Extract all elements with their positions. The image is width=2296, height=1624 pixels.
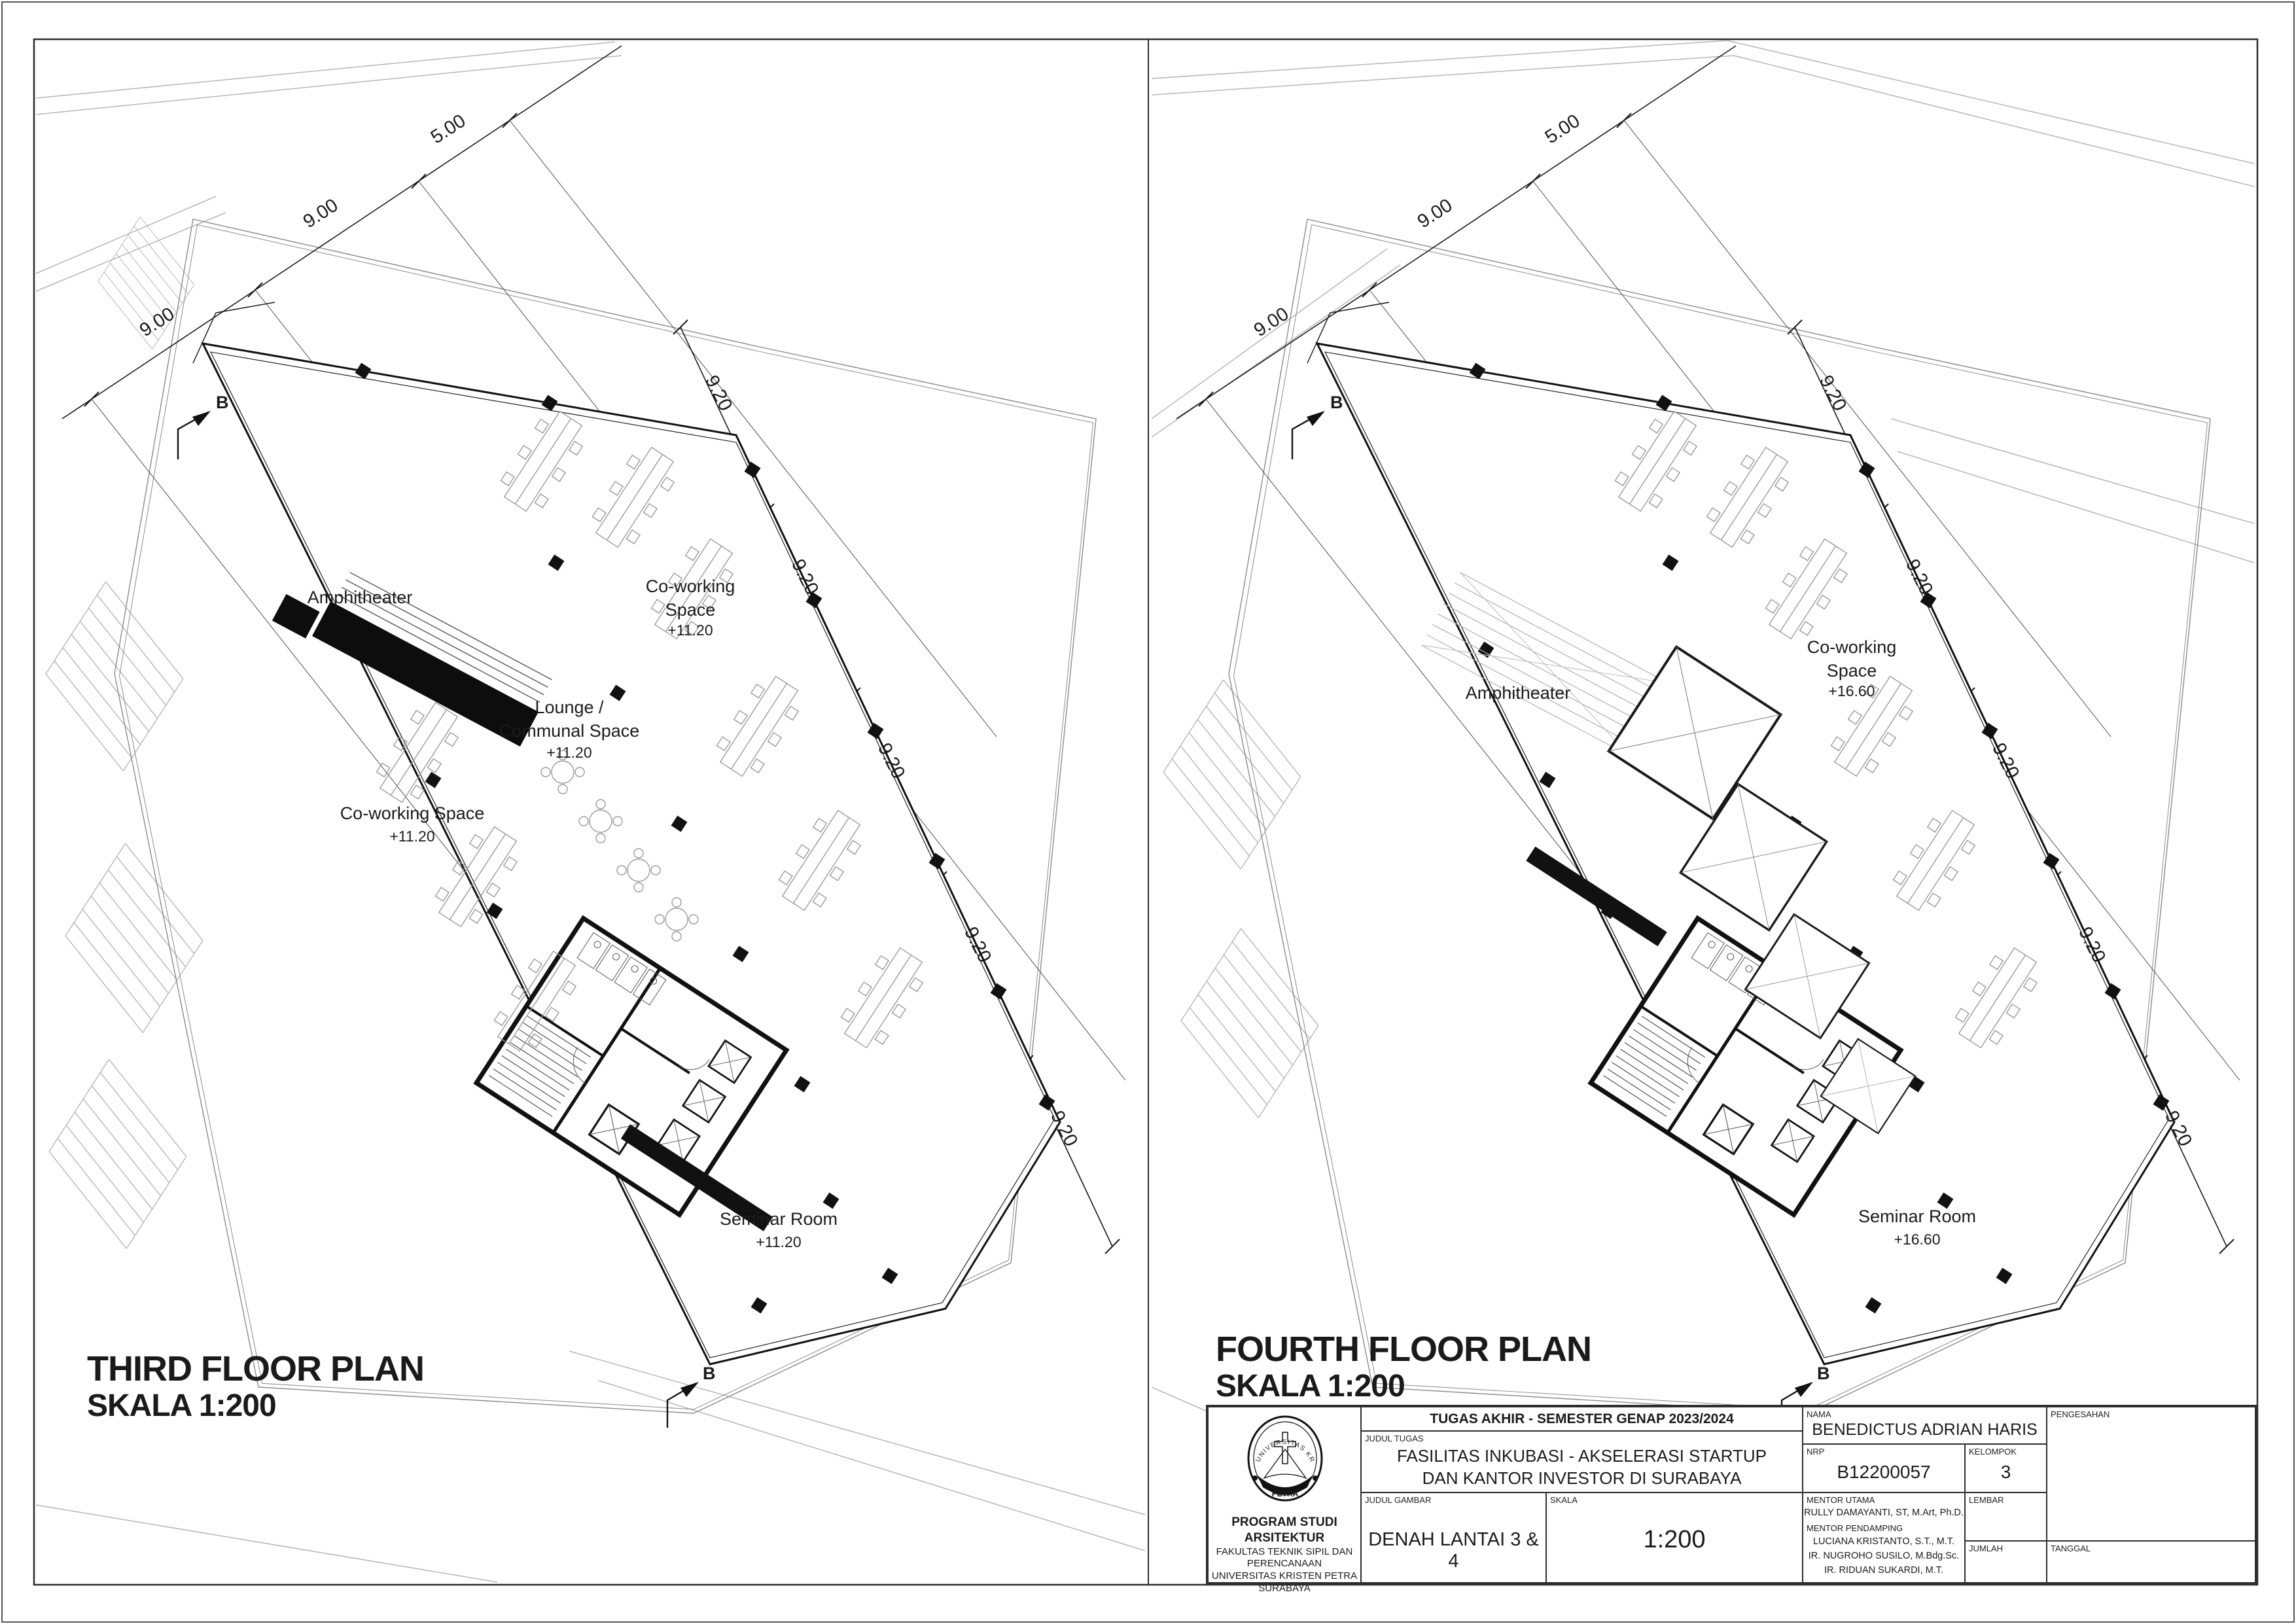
mentor-utama-label: MENTOR UTAMA xyxy=(1807,1495,1875,1505)
project-title-line2: DAN KANTOR INVESTOR DI SURABAYA xyxy=(1362,1468,1802,1489)
student-id: B12200057 xyxy=(1803,1462,1964,1483)
mentor-pendamping-1: LUCIANA KRISTANTO, S.T., M.T. xyxy=(1803,1536,1964,1547)
mentor-pendamping-3: IR. RIDUAN SUKARDI, M.T. xyxy=(1803,1565,1964,1576)
room-label-coworking-1: Co-working xyxy=(1807,637,1897,657)
plan-title-text: FOURTH FLOOR PLAN xyxy=(1216,1330,1591,1369)
room-label-seminar: Seminar Room xyxy=(720,1209,838,1229)
institution-city: SURABAYA xyxy=(1209,1583,1360,1595)
header-cell: TUGAS AKHIR - SEMESTER GENAP 2023/2024 xyxy=(1361,1407,1803,1431)
level-label-seminar: +16.60 xyxy=(1894,1231,1941,1248)
level-label-coworking-right: +11.20 xyxy=(667,622,713,639)
project-title-line1: FASILITAS INKUBASI - AKSELERASI STARTUP xyxy=(1362,1446,1802,1466)
kelompok-cell: KELOMPOK 3 xyxy=(1965,1444,2047,1492)
skala-cell: SKALA 1:200 xyxy=(1546,1492,1803,1583)
room-label-coworking-right-1: Co-working xyxy=(646,576,735,596)
university-logo: UNIVERSITAS KRISTEN PETRA xyxy=(1245,1413,1326,1511)
room-label-coworking-left: Co-working Space xyxy=(340,803,485,823)
dim-label: 5.00 xyxy=(427,111,470,149)
room-label-lounge-1: Lounge / xyxy=(535,697,604,717)
room-label-seminar: Seminar Room xyxy=(1858,1207,1976,1226)
room-label-lounge-2: Communal Space xyxy=(499,721,640,741)
judul-tugas-label: JUDUL TUGAS xyxy=(1365,1434,1424,1443)
room-label-amphitheater: Amphitheater xyxy=(1466,683,1571,703)
third-floor-plan-title: THIRD FLOOR PLAN SKALA 1:200 xyxy=(87,1349,424,1424)
institution-university: UNIVERSITAS KRISTEN PETRA xyxy=(1209,1570,1360,1583)
section-marker-label: B xyxy=(1817,1364,1830,1383)
section-marker-label: B xyxy=(216,393,229,412)
nrp-cell: NRP B12200057 xyxy=(1803,1444,1965,1492)
level-label-lounge: +11.20 xyxy=(546,744,592,761)
dim-label: 9.00 xyxy=(136,304,179,342)
dim-label: 9.00 xyxy=(1250,304,1293,342)
room-label-amphitheater: Amphitheater xyxy=(308,588,413,607)
nama-label: NAMA xyxy=(1807,1409,1831,1419)
section-marker-label: B xyxy=(1330,393,1343,412)
room-label-coworking-2: Space xyxy=(1827,661,1877,680)
plan-scale-text: SKALA 1:200 xyxy=(87,1388,424,1424)
kelompok-label: KELOMPOK xyxy=(1969,1447,2017,1456)
level-label-seminar: +11.20 xyxy=(756,1233,801,1250)
judul-tugas-cell: JUDUL TUGAS FASILITAS INKUBASI - AKSELER… xyxy=(1361,1431,1803,1492)
level-label-coworking-left: +11.20 xyxy=(389,828,434,845)
institution-program: PROGRAM STUDI ARSITEKTUR xyxy=(1209,1515,1360,1546)
lembar-cell: LEMBAR xyxy=(1965,1492,2047,1541)
drawing-sheet: Amphitheater Lounge / Communal Space +11… xyxy=(0,0,2296,1624)
dim-label: 9.00 xyxy=(300,195,342,233)
dim-label: 5.00 xyxy=(1542,111,1584,149)
institution-cell: UNIVERSITAS KRISTEN PETRA PROGRAM STUDI … xyxy=(1208,1407,1361,1583)
tanggal-label: TANGGAL xyxy=(2051,1544,2091,1553)
drawing-title: DENAH LANTAI 3 & 4 xyxy=(1362,1529,1545,1572)
dim-label: 9.20 xyxy=(1815,372,1850,415)
plan-title-text: THIRD FLOOR PLAN xyxy=(87,1349,424,1388)
mentor-cell: MENTOR UTAMA RULLY DAMAYANTI, ST, M.Art,… xyxy=(1803,1492,1965,1583)
skala-label: SKALA xyxy=(1550,1495,1578,1505)
section-marker-label: B xyxy=(703,1364,716,1383)
mentor-utama-name: RULLY DAMAYANTI, ST, M.Art, Ph.D. xyxy=(1803,1508,1964,1518)
judul-gambar-cell: JUDUL GAMBAR DENAH LANTAI 3 & 4 xyxy=(1361,1492,1546,1583)
student-name: BENEDICTUS ADRIAN HARIS xyxy=(1803,1421,2046,1439)
plan-scale-text: SKALA 1:200 xyxy=(1216,1369,1591,1404)
institution-faculty: FAKULTAS TEKNIK SIPIL DAN PERENCANAAN xyxy=(1209,1546,1360,1571)
title-block: UNIVERSITAS KRISTEN PETRA PROGRAM STUDI … xyxy=(1206,1405,2257,1585)
jumlah-label: JUMLAH xyxy=(1969,1544,2003,1553)
dim-label: 9.00 xyxy=(1414,195,1457,233)
pengesahan-cell: PENGESAHAN xyxy=(2047,1407,2255,1541)
nrp-label: NRP xyxy=(1807,1447,1824,1456)
group-number: 3 xyxy=(1966,1462,2046,1483)
mentor-pendamping-label: MENTOR PENDAMPING xyxy=(1807,1523,1903,1533)
sheet-header: TUGAS AKHIR - SEMESTER GENAP 2023/2024 xyxy=(1362,1411,1802,1427)
level-label-coworking: +16.60 xyxy=(1829,682,1875,699)
scale-value: 1:200 xyxy=(1547,1526,1802,1554)
mentor-pendamping-2: IR. NUGROHO SUSILO, M.Bdg.Sc. xyxy=(1803,1551,1964,1561)
logo-bottom-text: PETRA xyxy=(1272,1489,1299,1498)
nama-cell: NAMA BENEDICTUS ADRIAN HARIS xyxy=(1803,1407,2047,1444)
judul-gambar-label: JUDUL GAMBAR xyxy=(1365,1495,1431,1505)
jumlah-cell: JUMLAH xyxy=(1965,1541,2047,1583)
fourth-floor-plan-title: FOURTH FLOOR PLAN SKALA 1:200 xyxy=(1216,1330,1591,1404)
tanggal-cell: TANGGAL xyxy=(2047,1541,2255,1583)
room-label-coworking-right-2: Space xyxy=(665,600,716,620)
lembar-label: LEMBAR xyxy=(1969,1495,2004,1505)
dim-label: 9.20 xyxy=(701,372,736,415)
pengesahan-label: PENGESAHAN xyxy=(2051,1409,2110,1419)
